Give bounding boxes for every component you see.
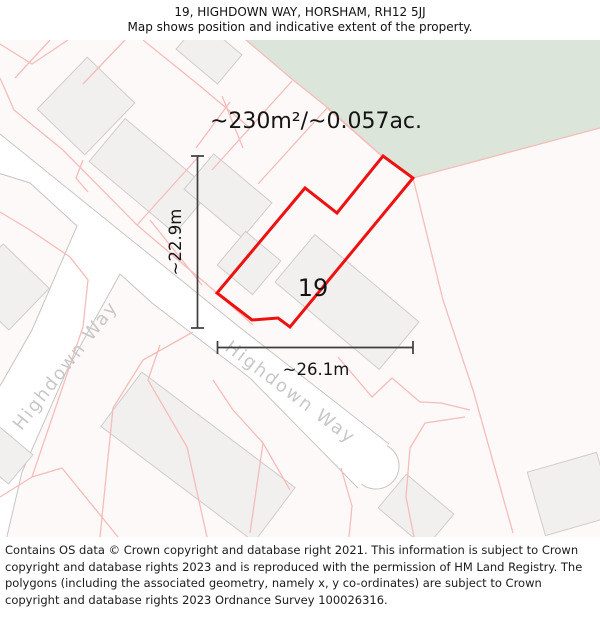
header: 19, HIGHDOWN WAY, HORSHAM, RH12 5JJ Map … (0, 0, 600, 40)
property-map-page: 19, HIGHDOWN WAY, HORSHAM, RH12 5JJ Map … (0, 0, 600, 625)
map-container: Highdown Way Highdown Way ~230m²/~0.057a… (0, 40, 600, 537)
property-map: Highdown Way Highdown Way ~230m²/~0.057a… (0, 40, 600, 537)
area-label: ~230m²/~0.057ac. (210, 109, 422, 134)
page-subtitle: Map shows position and indicative extent… (0, 20, 600, 35)
width-dimension-label: ~26.1m (283, 360, 350, 379)
height-dimension-label: ~22.9m (166, 209, 185, 276)
copyright-notice: Contains OS data © Crown copyright and d… (0, 537, 599, 625)
plot-number-label: 19 (298, 274, 329, 302)
page-title: 19, HIGHDOWN WAY, HORSHAM, RH12 5JJ (0, 0, 600, 20)
